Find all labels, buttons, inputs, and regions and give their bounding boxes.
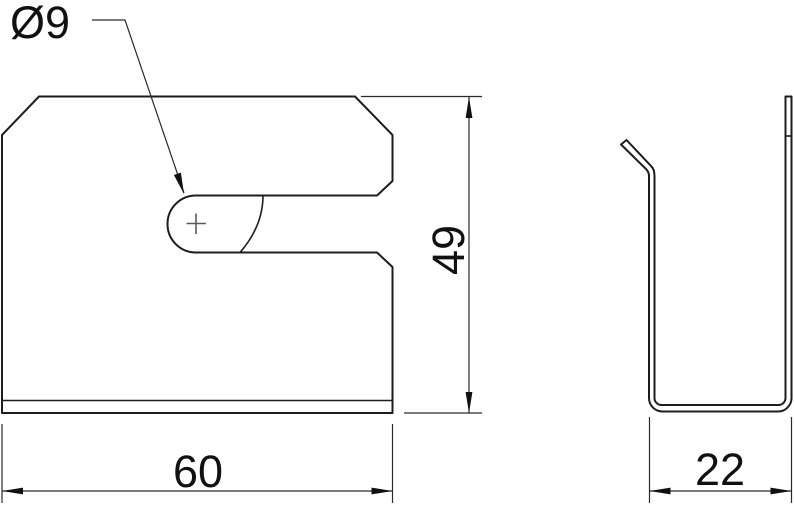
leader-arrowhead-icon	[174, 173, 184, 194]
depth-dimension-label: 22	[695, 444, 745, 495]
width-arrow-right-icon	[372, 488, 393, 495]
diameter-label: Ø9	[10, 0, 70, 48]
slot-center-mark	[187, 214, 207, 235]
height-arrow-down-icon	[466, 392, 473, 413]
height-dimension-label: 49	[423, 225, 474, 275]
depth-arrow-left-icon	[650, 488, 671, 495]
dimension-depth: 22	[650, 417, 792, 503]
width-arrow-left-icon	[2, 488, 23, 495]
slot-transition-curve	[240, 196, 263, 253]
height-arrow-up-icon	[466, 97, 473, 118]
dimension-width: 60	[2, 424, 393, 503]
leader-line	[92, 20, 184, 193]
profile-outline	[621, 97, 792, 412]
technical-drawing-page: Ø9 49 60	[0, 0, 794, 505]
diameter-leader	[92, 20, 184, 194]
side-view	[621, 97, 792, 412]
depth-arrow-right-icon	[771, 488, 792, 495]
front-view: Ø9	[2, 0, 393, 413]
technical-drawing-canvas: Ø9 49 60	[0, 0, 794, 505]
plate-outline	[2, 97, 393, 414]
width-dimension-label: 60	[173, 446, 223, 497]
